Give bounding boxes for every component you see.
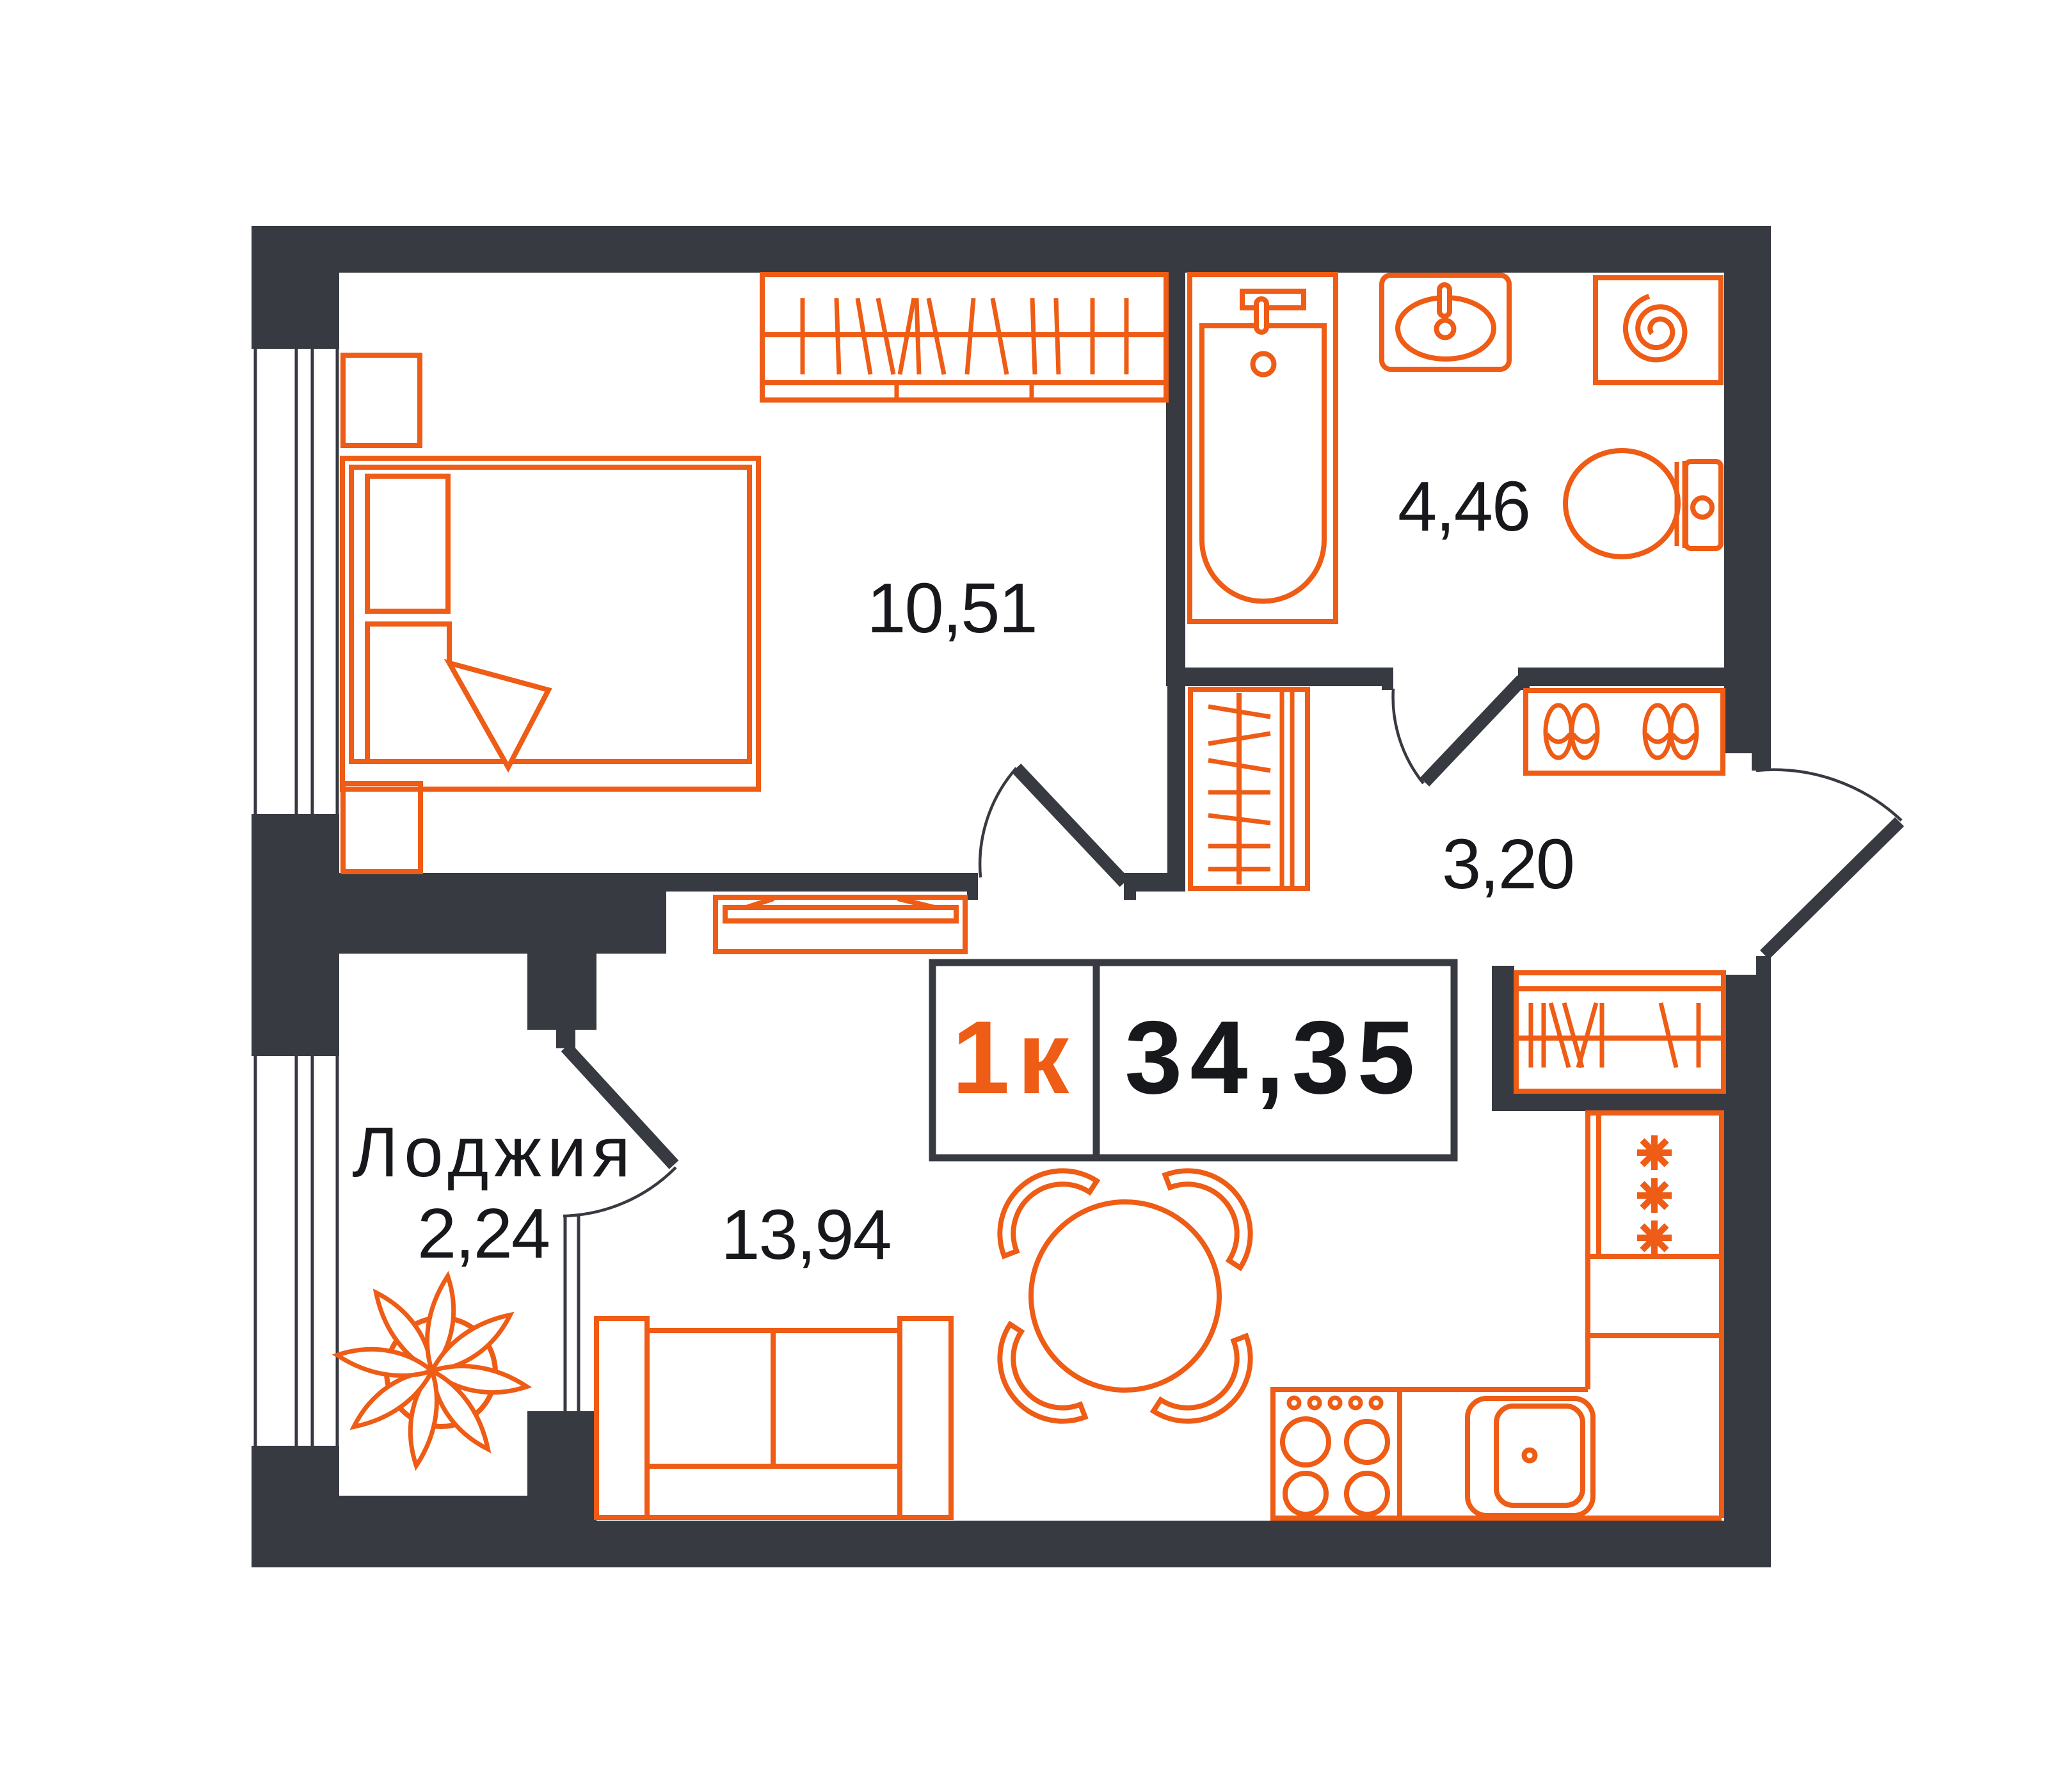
- svg-text:10,51: 10,51: [867, 569, 1036, 648]
- svg-text:3,20: 3,20: [1442, 825, 1574, 904]
- svg-text:2,24: 2,24: [417, 1194, 549, 1273]
- svg-text:4,46: 4,46: [1398, 467, 1530, 546]
- svg-text:13,94: 13,94: [721, 1196, 890, 1274]
- svg-text:34,35: 34,35: [1124, 1000, 1422, 1116]
- svg-text:Лоджия: Лоджия: [352, 1113, 636, 1192]
- svg-text:1к: 1к: [952, 1000, 1076, 1116]
